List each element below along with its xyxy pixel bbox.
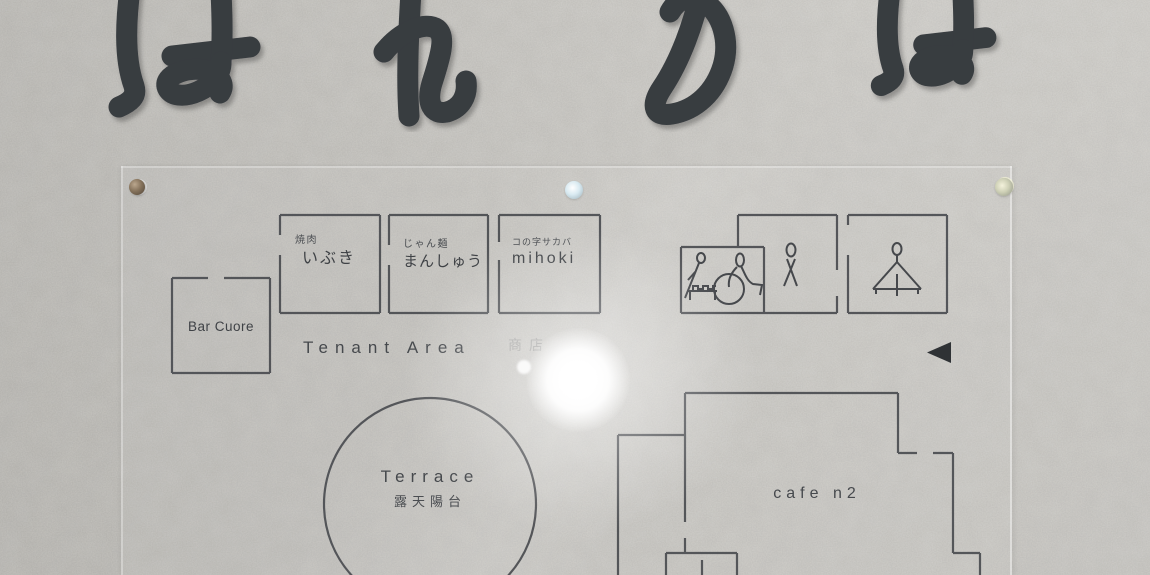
tenant-category-ibuki: 焼肉 xyxy=(295,235,356,248)
photo-of-floor-guide-sign: { "title": { "text": "はれのは", "characters… xyxy=(0,0,1150,575)
tenant-label-ibuki: 焼肉 いぶき xyxy=(295,235,356,269)
screw-center-icon xyxy=(565,181,583,199)
tenant-name-ibuki: いぶき xyxy=(302,249,356,269)
light-reflection-dot xyxy=(517,360,531,374)
screw-right-icon xyxy=(995,178,1013,196)
screw-left-icon xyxy=(129,179,145,195)
tenant-label-bar-cuore: Bar Cuore xyxy=(172,319,270,336)
title-char-re xyxy=(384,0,466,116)
light-reflection-core xyxy=(526,328,630,432)
cafe-n2-label: cafe n2 xyxy=(742,484,892,504)
title-char-ha-2 xyxy=(881,0,986,86)
title-char-ha-1 xyxy=(119,0,250,107)
title-lettering-art xyxy=(0,0,1150,132)
title-char-no xyxy=(655,0,726,114)
tenant-category-manshu: じゃん麺 xyxy=(403,239,483,252)
